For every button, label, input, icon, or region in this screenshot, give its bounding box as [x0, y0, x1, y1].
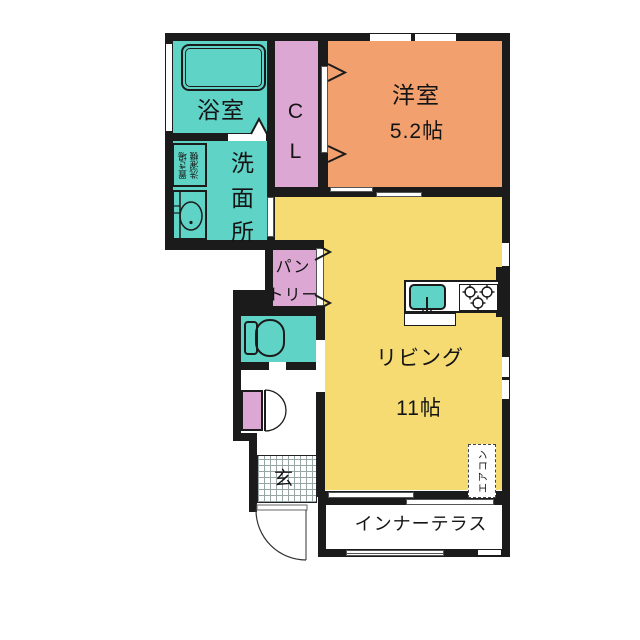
label-living-size: 11帖: [396, 392, 442, 422]
entrance-door-arc: [256, 510, 306, 560]
label-pantry-2: トリー: [267, 281, 318, 305]
label-western: 洋室: [392, 76, 440, 110]
label-closet-l: L: [290, 140, 303, 164]
entrance-door-leaf: [257, 505, 307, 510]
pantry-arrow-top: [315, 244, 330, 260]
label-western-size: 5.2帖: [390, 115, 444, 145]
label-inner-terrace: インナーテラス: [355, 510, 488, 536]
floor-plan: 洗濯機 置き場 エアコン: [0, 0, 640, 640]
vanity-drain: [189, 221, 192, 224]
closet-arrow-bottom: [328, 146, 345, 162]
label-washroom-1: 洗: [231, 144, 255, 178]
shoe-door-arc-bottom: [265, 411, 286, 432]
label-washroom-3: 所: [231, 213, 255, 247]
plan-linework: [0, 0, 640, 640]
label-bathroom: 浴室: [197, 91, 245, 125]
label-living: リビング: [376, 342, 464, 372]
label-washroom-2: 面: [231, 179, 255, 213]
label-closet-c: C: [288, 100, 304, 124]
vanity-basin: [180, 202, 202, 230]
shoe-door-arc-top: [265, 390, 286, 411]
closet-arrow-top: [328, 64, 345, 81]
label-entrance: 玄: [274, 464, 294, 491]
stove-burners: [463, 285, 495, 311]
toilet-bowl: [256, 320, 284, 356]
bath-door-mark: [251, 119, 267, 134]
label-pantry-1: パン: [276, 253, 311, 277]
